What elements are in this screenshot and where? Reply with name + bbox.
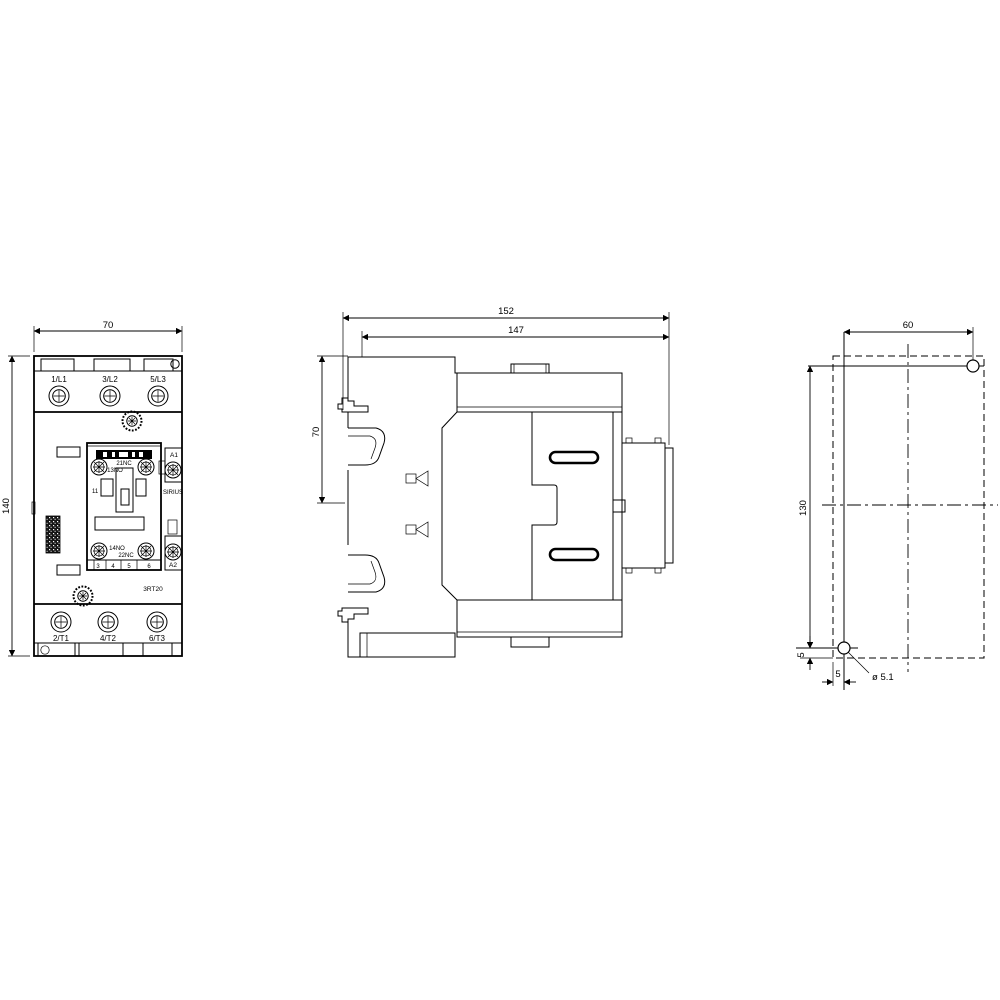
mounting-screw-top	[123, 412, 142, 431]
coil-screw-a2	[165, 544, 181, 560]
aux-label-top-no: 13NO	[107, 468, 123, 474]
terminal-label-bottom-3: 6/T3	[149, 634, 166, 643]
side-dim-total-label: 152	[498, 306, 514, 317]
terminal-label-bottom-2: 4/T2	[100, 634, 117, 643]
side-dim-rail-label: 70	[311, 427, 322, 438]
coil-label-a2: A2	[169, 562, 177, 569]
main-terminal-screw	[98, 612, 118, 632]
model-label: 3RT20	[143, 586, 163, 593]
hole-diameter-label: ø 5.1	[872, 672, 894, 683]
aux-screw	[91, 543, 107, 559]
mounting-view: 60 130 5 5 ø 5.1	[796, 320, 998, 690]
aux-screw	[138, 459, 154, 475]
release-symbol-top	[406, 471, 428, 486]
mounting-screw-bottom	[74, 587, 93, 606]
main-terminal-screw	[49, 386, 69, 406]
drawing-canvas: 70 140 1/L1 3/L2 5/L3	[0, 0, 1000, 1000]
slot-number-3: 5	[127, 564, 131, 570]
din-clip-bottom-hook	[338, 608, 368, 622]
front-top-hole	[171, 360, 179, 368]
main-terminal-screw	[147, 612, 167, 632]
mount-dim-horizontal: 60	[844, 320, 973, 360]
slot-number-1: 3	[96, 564, 100, 570]
dimension-drawing: 70 140 1/L1 3/L2 5/L3	[0, 0, 1000, 1000]
coil-screw-a1	[165, 462, 181, 478]
mounting-hole-top	[967, 360, 979, 372]
aux-module: 21NC 13NO 11 14NO 22NC 3 4 5 6	[87, 443, 161, 570]
main-terminal-screw	[51, 612, 71, 632]
din-clip-bottom-claw	[348, 555, 385, 592]
side-dim-body-label: 147	[508, 325, 524, 336]
device-outline-dashed	[833, 356, 984, 658]
label-field	[46, 516, 60, 553]
front-dim-height-label: 140	[1, 498, 12, 514]
coil-terminal-column: A1 SIRIUS A2 3RT20	[143, 448, 183, 593]
mount-dim-vertical: 130	[798, 366, 810, 648]
slot-number-4: 6	[147, 564, 151, 570]
din-clip-top-hook	[338, 398, 368, 412]
slot-number-2: 4	[111, 564, 115, 570]
brand-label: SIRIUS	[163, 490, 183, 496]
terminal-label-top-3: 5/L3	[150, 375, 166, 384]
vent-slot-top	[550, 452, 598, 463]
aux-label-11: 11	[92, 489, 99, 495]
mount-dim-horizontal-label: 60	[903, 320, 914, 331]
front-body-outline	[34, 356, 182, 656]
front-bottom-hole	[41, 646, 49, 654]
terminal-label-top-1: 1/L1	[51, 375, 67, 384]
side-dim-total: 152	[343, 306, 669, 445]
terminal-label-top-2: 3/L2	[102, 375, 118, 384]
mount-dim-side-offset-label: 5	[835, 669, 840, 680]
main-terminal-screw	[148, 386, 168, 406]
aux-screw	[91, 459, 107, 475]
front-view: 70 140 1/L1 3/L2 5/L3	[1, 320, 183, 656]
mount-dim-bottom-offset: 5	[796, 636, 833, 670]
din-clip-top-claw	[348, 428, 385, 465]
aux-label-bottom-no: 14NO	[109, 546, 125, 552]
mount-dim-bottom-offset-label: 5	[796, 652, 807, 657]
side-dim-body: 147	[362, 325, 669, 357]
vent-slot-bottom	[550, 549, 598, 560]
aux-label-top-nc: 21NC	[116, 461, 132, 467]
release-symbol-bottom	[406, 522, 428, 537]
coil-label-a1: A1	[170, 452, 178, 459]
side-terminal-block	[622, 443, 665, 568]
main-terminal-screw	[100, 386, 120, 406]
front-dim-width: 70	[34, 320, 182, 352]
side-profile	[338, 357, 673, 657]
front-dim-height: 140	[1, 356, 30, 656]
aux-label-bottom-nc: 22NC	[118, 553, 134, 559]
hole-diameter-callout: ø 5.1	[848, 652, 894, 683]
side-view: 152 147 70	[311, 306, 673, 657]
mount-dim-side-offset: 5	[822, 662, 856, 686]
mount-dim-vertical-label: 130	[798, 500, 809, 516]
aux-screw	[138, 543, 154, 559]
terminal-label-bottom-1: 2/T1	[53, 634, 70, 643]
side-dim-rail: 70	[311, 356, 348, 503]
front-dim-width-label: 70	[103, 320, 114, 331]
